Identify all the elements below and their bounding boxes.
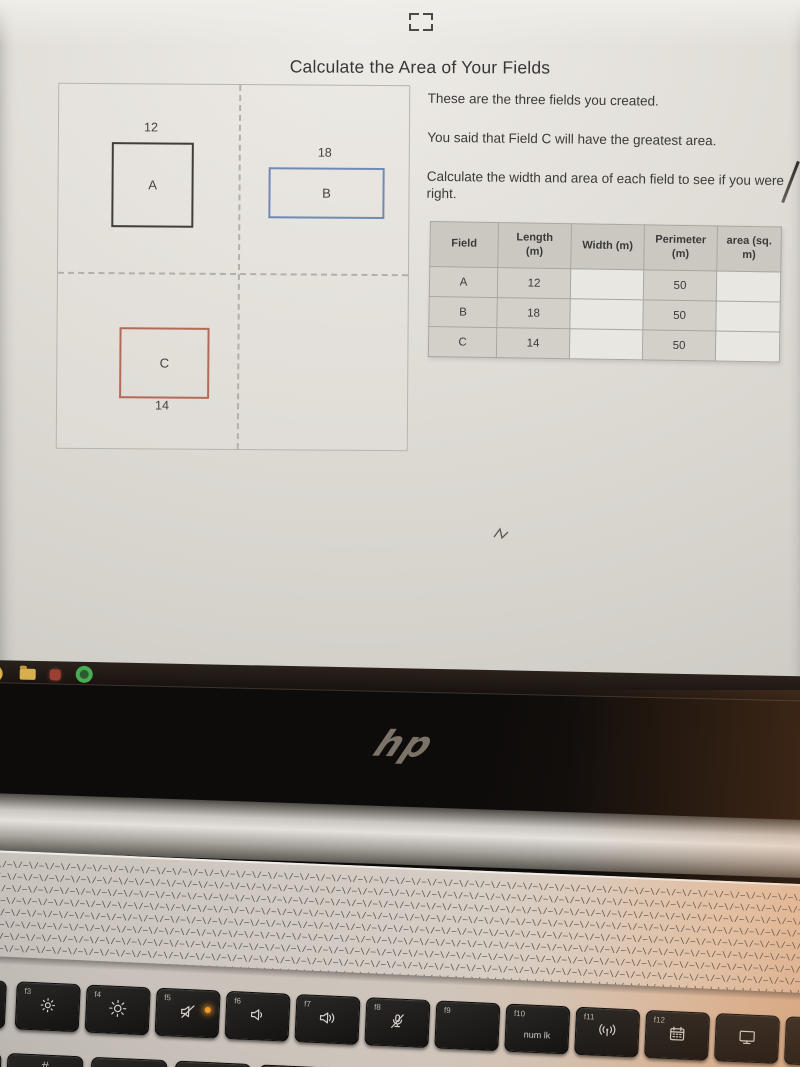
table-header-cell: Field (430, 222, 499, 268)
key-f6: f6 (224, 991, 290, 1042)
volume-up-icon (317, 1009, 337, 1031)
mute-led-indicator (205, 1007, 211, 1013)
table-header-cell: Perimeter(m) (644, 225, 718, 271)
table-header-cell: Width (m) (571, 224, 645, 270)
field-c-rect: C (119, 327, 209, 399)
table-cell-c-perimeter: 50 (642, 330, 715, 361)
laptop-photo: Calculate the Area of Your Fields 12 A 1… (0, 0, 800, 1067)
table-cell-b-perimeter: 50 (643, 300, 716, 331)
field-a-rect: A (111, 142, 194, 228)
key-partial (784, 1016, 800, 1067)
file-explorer-folder-icon[interactable] (20, 669, 36, 680)
table-cell-a-area[interactable] (716, 271, 780, 302)
diagram-dashed-vertical-line (237, 85, 242, 449)
table-cell-c-length: 14 (496, 328, 569, 359)
wireless-icon (597, 1022, 618, 1044)
key-%: % (172, 1061, 251, 1067)
fields-table: FieldLength(m)Width (m)Perimeter(m)area … (428, 221, 782, 363)
fields-table-header: FieldLength(m)Width (m)Perimeter(m)area … (430, 222, 782, 273)
mouse-cursor-mark (492, 526, 512, 542)
brightness-up-icon (108, 999, 127, 1023)
mic-mute-icon (388, 1013, 407, 1035)
table-cell-b-length: 18 (497, 298, 570, 329)
field-c-label: C (160, 355, 169, 370)
table-row: C1450 (428, 326, 779, 362)
table-cell-c-width[interactable] (569, 329, 642, 360)
red-app-icon[interactable] (50, 669, 61, 680)
fields-diagram: 12 A 18 B C 14 (56, 83, 411, 451)
field-b-length-label: 18 (269, 145, 381, 160)
table-cell-a-field: A (429, 267, 497, 298)
app-circle-partial-icon[interactable] (0, 665, 3, 682)
instructions-block: These are the three fields you created. … (426, 90, 794, 229)
green-app-icon[interactable] (76, 666, 93, 683)
table-cell-a-length: 12 (497, 268, 570, 299)
table-cell-c-area[interactable] (715, 331, 779, 362)
volume-down-icon (248, 1006, 267, 1028)
field-c-length-label: 14 (119, 398, 205, 413)
calendar-icon (668, 1025, 687, 1047)
table-cell-a-width[interactable] (570, 269, 643, 300)
field-b-rect: B (268, 167, 384, 219)
key-f4: f4 (85, 985, 151, 1036)
field-a-label: A (148, 177, 157, 192)
key-#: # (5, 1053, 84, 1067)
key-f3: f3 (15, 981, 81, 1032)
field-b-label: B (322, 186, 331, 201)
table-cell-b-width[interactable] (570, 299, 643, 330)
diagram-dashed-horizontal-line (58, 272, 408, 276)
key-f11: f11 (574, 1007, 640, 1058)
key-f5: f5 (155, 988, 221, 1039)
key-f10: f10num lk (504, 1004, 570, 1055)
table-cell-b-field: B (429, 296, 497, 327)
brightness-down-icon (39, 997, 56, 1019)
key-f7: f7 (294, 994, 360, 1045)
key-partial (0, 978, 7, 1029)
fullscreen-icon[interactable] (409, 13, 433, 31)
table-cell-b-area[interactable] (716, 301, 780, 332)
key-¤: ¤ (89, 1057, 168, 1067)
mute-icon (178, 1003, 197, 1025)
table-cell-c-field: C (428, 326, 496, 357)
table-header-cell: Length(m) (498, 223, 572, 269)
laptop-screen: Calculate the Area of Your Fields 12 A 1… (0, 0, 800, 710)
hp-logo: hp (367, 724, 442, 766)
browser-top-strip (0, 0, 800, 46)
field-a-length-label: 12 (112, 120, 190, 135)
instruction-line-1: These are the three fields you created. (428, 90, 794, 112)
key-f12: f12 (644, 1010, 710, 1061)
key-f9: f9 (434, 1000, 500, 1051)
table-cell-a-perimeter: 50 (643, 270, 716, 301)
instruction-line-2: You said that Field C will have the grea… (427, 129, 793, 151)
key-f8: f8 (364, 997, 430, 1048)
key-partial (714, 1013, 780, 1064)
table-header-cell: area (sq.m) (717, 226, 782, 272)
key-partial (0, 1049, 2, 1067)
instruction-line-3: Calculate the width and area of each fie… (426, 167, 792, 207)
display-switch-icon (738, 1029, 757, 1051)
page-title: Calculate the Area of Your Fields (40, 55, 800, 79)
